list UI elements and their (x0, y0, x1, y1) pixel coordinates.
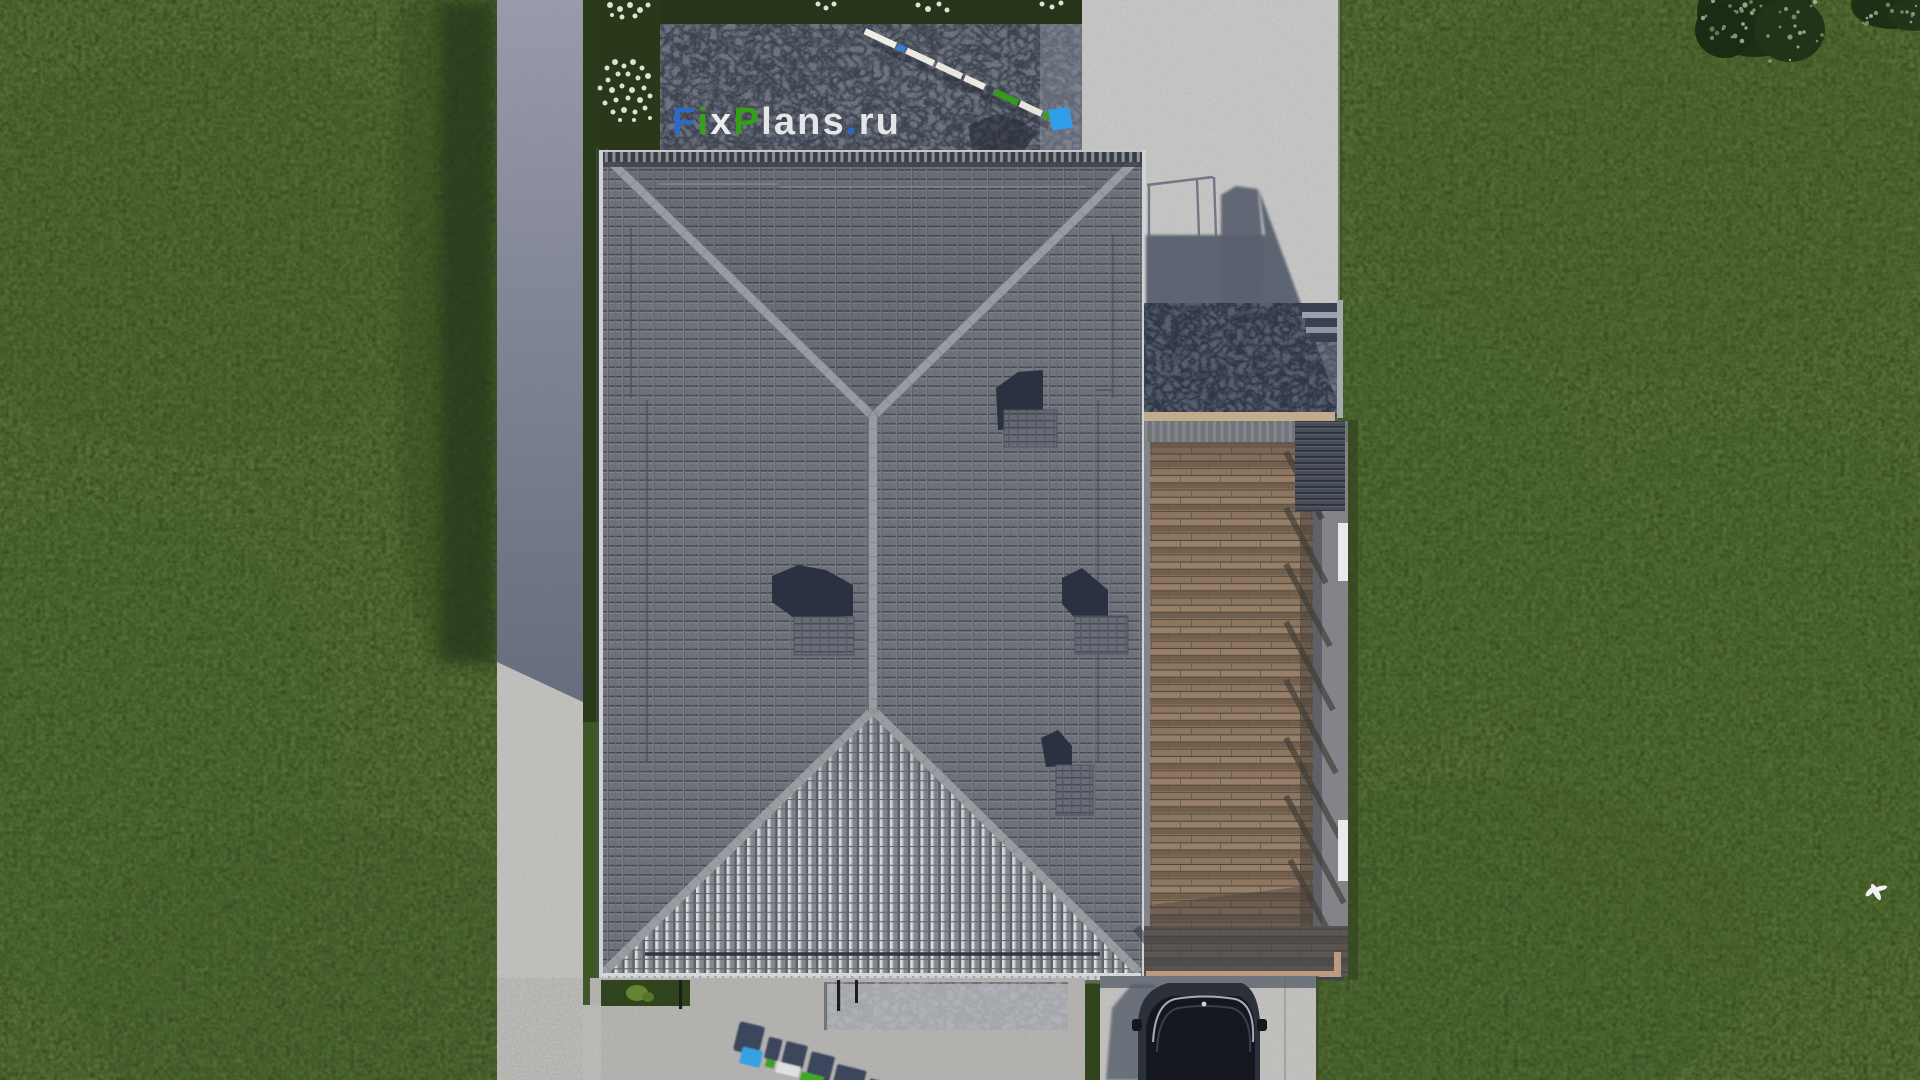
svg-text:FixPlans.ru: FixPlans.ru (672, 101, 901, 143)
